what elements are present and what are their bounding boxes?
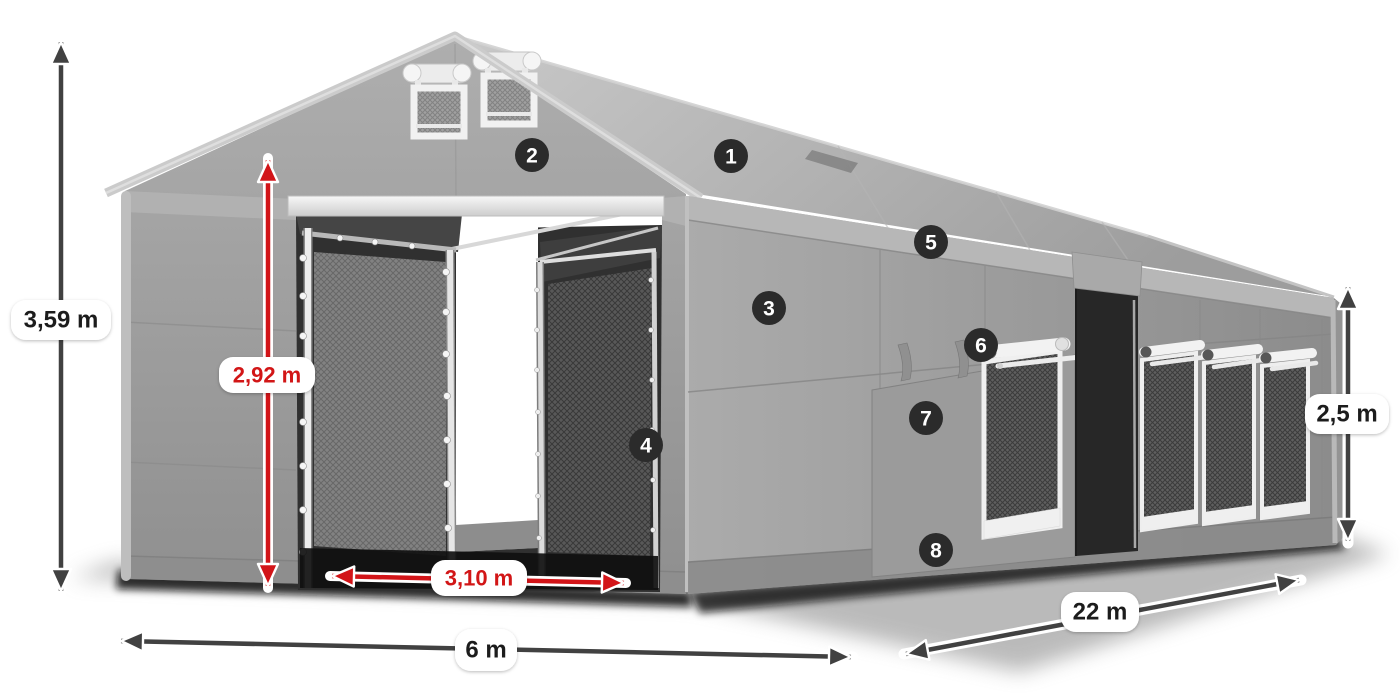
dimension-label-front-width: 6 m (465, 637, 506, 664)
side-window-rear-3 (1261, 353, 1317, 519)
front-gate-opening (288, 196, 664, 592)
tent-product-diagram: 3,59 m 2,92 m 3,10 m 6 m (0, 0, 1400, 700)
callout-badge-6[interactable]: 6 (964, 328, 998, 362)
gate-lintel-beam (288, 196, 664, 216)
callout-badge-2[interactable]: 2 (515, 138, 549, 172)
side-window-rear-2 (1203, 349, 1263, 524)
sliding-door-opening (1072, 252, 1142, 556)
front-left-corner-pole (121, 191, 131, 581)
side-window-rear-1 (1141, 345, 1207, 530)
dimension-label-wall-height: 2,5 m (1316, 401, 1377, 428)
far-gate-mesh (548, 268, 652, 556)
tent-structure (106, 36, 1352, 594)
dim-total-height: 3,59 m (11, 40, 111, 593)
dimension-label-gate-width: 3,10 m (445, 566, 514, 591)
callout-badge-8[interactable]: 8 (919, 533, 953, 567)
dimension-label-side-length: 22 m (1073, 599, 1128, 626)
callout-badge-1[interactable]: 1 (714, 139, 748, 173)
callout-badge-3[interactable]: 3 (752, 291, 786, 325)
near-gate-right-pole (450, 250, 452, 588)
callout-badge-5[interactable]: 5 (914, 225, 948, 259)
callout-number: 3 (763, 298, 775, 321)
callout-number: 7 (920, 408, 932, 431)
dimension-label-gate-height: 2,92 m (233, 363, 302, 388)
callout-number: 1 (725, 146, 737, 169)
callout-number: 2 (526, 145, 538, 168)
gable-vent-left (403, 64, 471, 136)
dimension-label-total-height: 3,59 m (24, 307, 99, 334)
callout-number: 5 (925, 232, 937, 255)
dim-front-width: 6 m (119, 629, 853, 671)
callout-number: 4 (640, 435, 652, 458)
callout-badge-4[interactable]: 4 (629, 428, 663, 462)
see-through-gap (456, 216, 538, 552)
near-gate-mesh (314, 252, 446, 556)
tent-side-wall (687, 196, 1336, 594)
callout-number: 6 (975, 335, 987, 358)
callout-number: 8 (930, 540, 942, 563)
callout-badge-7[interactable]: 7 (909, 401, 943, 435)
